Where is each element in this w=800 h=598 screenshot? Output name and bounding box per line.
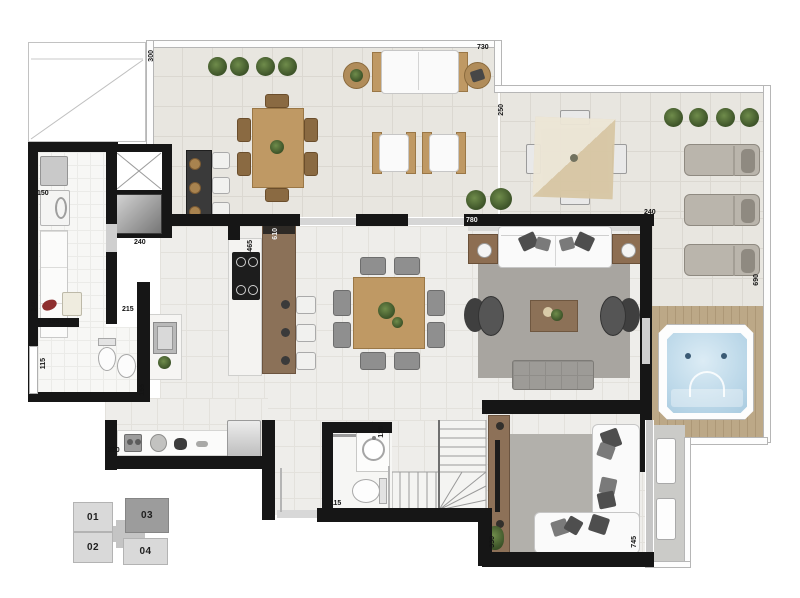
parapet-top (146, 40, 502, 48)
dim-support-counter: 320 (108, 447, 120, 454)
bar-tray (189, 182, 201, 194)
keyplan-unit-label: 04 (139, 546, 151, 557)
dining-table-plant (378, 302, 395, 319)
island-stool (296, 324, 316, 342)
dining-chair (394, 352, 420, 370)
coffee-table (530, 300, 578, 332)
entry-door (277, 510, 317, 518)
jacuzzi-seat (671, 389, 743, 407)
island-stool (296, 296, 316, 314)
kitchen-column (228, 224, 240, 240)
bar-stool (212, 177, 230, 194)
dining-chair (427, 290, 445, 316)
terrace-armchair (372, 132, 414, 172)
keyplan: 01 03 02 04 (70, 496, 175, 572)
elevator-x-icon (116, 152, 162, 190)
wall-laundry-right-a (106, 142, 117, 224)
dim-terrace-top-width: 730 (477, 44, 489, 51)
dishwasher (227, 420, 261, 458)
jacuzzi (658, 324, 754, 420)
wall-bath-bottom (28, 392, 150, 402)
dining-chair (360, 352, 386, 370)
island-tap (281, 328, 290, 337)
elevator-block (108, 144, 172, 238)
floor-plan: 300 730 250 240 690 780 465 610 240 150 … (0, 0, 800, 598)
parapet-right (763, 85, 771, 443)
coffee-machine (124, 434, 142, 452)
side-table-plant (350, 69, 363, 82)
plant (490, 188, 512, 210)
toilet-bowl (352, 479, 380, 503)
dim-laundry-length: 340 (31, 300, 38, 312)
terrace-chair (265, 188, 289, 202)
wall-hall-bottom (317, 508, 488, 522)
table-plant (270, 140, 284, 154)
plant (740, 108, 759, 127)
bath-door-leaf (388, 466, 390, 508)
keyplan-unit-label: 01 (87, 512, 99, 523)
plant (664, 108, 683, 127)
sun-lounger (684, 244, 760, 276)
bar-tray (189, 158, 201, 170)
speaker-icon (496, 422, 504, 430)
wall-top-2 (356, 214, 408, 226)
sliding-door-1 (300, 217, 356, 225)
void-diagonal-line (29, 43, 145, 141)
wall-laundry-top (28, 142, 118, 152)
kitchen-sink (153, 322, 177, 354)
bar-stool (212, 152, 230, 169)
wall-tv-bottom (482, 552, 654, 567)
dining-chair (333, 290, 351, 316)
armchair-dark (600, 296, 640, 336)
plant (230, 57, 249, 76)
ottoman (512, 360, 594, 390)
elevator-shaft (116, 194, 162, 234)
toilet-tank (379, 478, 387, 504)
kettle (174, 438, 187, 450)
parapet-top-right (494, 85, 771, 93)
balcony-planter-1 (656, 438, 676, 484)
dining-chair (360, 257, 386, 275)
balcony-planter-2 (656, 498, 676, 540)
wall-hall-left (262, 420, 275, 520)
utensils (196, 441, 208, 447)
keyplan-unit-02: 02 (73, 532, 113, 563)
wall-tv-top (482, 400, 652, 414)
keyplan-unit-label: 03 (141, 510, 153, 521)
plant (466, 190, 486, 210)
dim-service-width: 195 (48, 318, 60, 325)
dim-laundry: 150 (37, 190, 49, 197)
terrace-chair (304, 118, 318, 142)
service-window (29, 346, 38, 394)
island-tap (281, 356, 290, 365)
dim-terrace-step: 250 (498, 104, 505, 116)
parapet-deck-bottom (688, 437, 768, 445)
cooktop (232, 252, 260, 300)
service-washbasin (117, 354, 136, 378)
terrace-sofa (372, 48, 466, 94)
tv-sofa-bottom (534, 512, 640, 554)
sink-island-plant (158, 356, 171, 369)
terrace-chair (265, 94, 289, 108)
dim-kitchen-passage: 155 (139, 384, 146, 396)
keyplan-unit-04: 04 (123, 538, 168, 565)
dim-bath-length: 115 (330, 500, 341, 507)
terrace-side-table (464, 62, 491, 89)
jacuzzi-jet (721, 353, 727, 359)
dining-table-plant (392, 317, 403, 328)
staircase (392, 420, 488, 512)
dining-chair (427, 322, 445, 348)
entry-door-leaf (280, 468, 282, 512)
plant (256, 57, 275, 76)
plant (208, 57, 227, 76)
patio-umbrella (533, 117, 616, 200)
void-area (28, 42, 146, 142)
laundry-sink (40, 156, 68, 186)
island-tap (281, 300, 290, 309)
dining-chair (394, 257, 420, 275)
terrace-chair (237, 152, 251, 176)
keyplan-unit-01: 01 (73, 502, 113, 532)
laundry-door (106, 224, 117, 252)
dim-kitchen-island: 610 (272, 228, 279, 240)
terrace-chair (304, 152, 318, 176)
terrace-chair (237, 118, 251, 142)
kitchen-island (262, 224, 296, 374)
armchair-dark (464, 296, 504, 336)
bath-round-sink (362, 438, 385, 461)
tv-room-window (645, 420, 654, 552)
small-appliance (62, 292, 82, 316)
plant (278, 57, 297, 76)
dim-island-gap: 215 (122, 306, 134, 313)
island-stool (296, 352, 316, 370)
sliding-door-2 (408, 217, 464, 225)
dim-bath-width: 120 (378, 426, 385, 438)
sun-lounger (684, 194, 760, 226)
dim-terrace-left: 300 (148, 50, 155, 62)
keyplan-unit-label: 02 (87, 542, 99, 553)
wall-laundry-right-b (106, 252, 117, 324)
parapet-balcony-right (684, 437, 691, 568)
dim-service-bath: 115 (40, 358, 47, 369)
side-table-lamp (468, 234, 498, 264)
dim-tv-panel: 330 (489, 536, 496, 548)
sun-lounger (684, 144, 760, 176)
dim-living-width: 780 (466, 217, 478, 224)
terrace-armchair (422, 132, 464, 172)
dining-chair (333, 322, 351, 348)
dim-tv-room: 745 (631, 536, 638, 548)
wall-counter-bottom (105, 456, 275, 469)
elevator-car (116, 152, 162, 190)
side-table-lamp (612, 234, 642, 264)
mixer (150, 434, 167, 452)
dim-elevator-hall: 240 (134, 239, 146, 246)
dim-terrace-right: 240 (644, 209, 656, 216)
dim-kitchen-counter: 465 (247, 240, 254, 252)
keyplan-unit-03: 03 (125, 498, 169, 533)
living-sofa (498, 226, 612, 268)
tv-screen (495, 440, 500, 512)
service-toilet (98, 338, 116, 346)
dim-terrace-right-height: 690 (753, 274, 760, 286)
plant (689, 108, 708, 127)
plant (716, 108, 735, 127)
jacuzzi-jet (685, 353, 691, 359)
deck-door (642, 318, 650, 364)
wall-top-3 (464, 214, 654, 226)
